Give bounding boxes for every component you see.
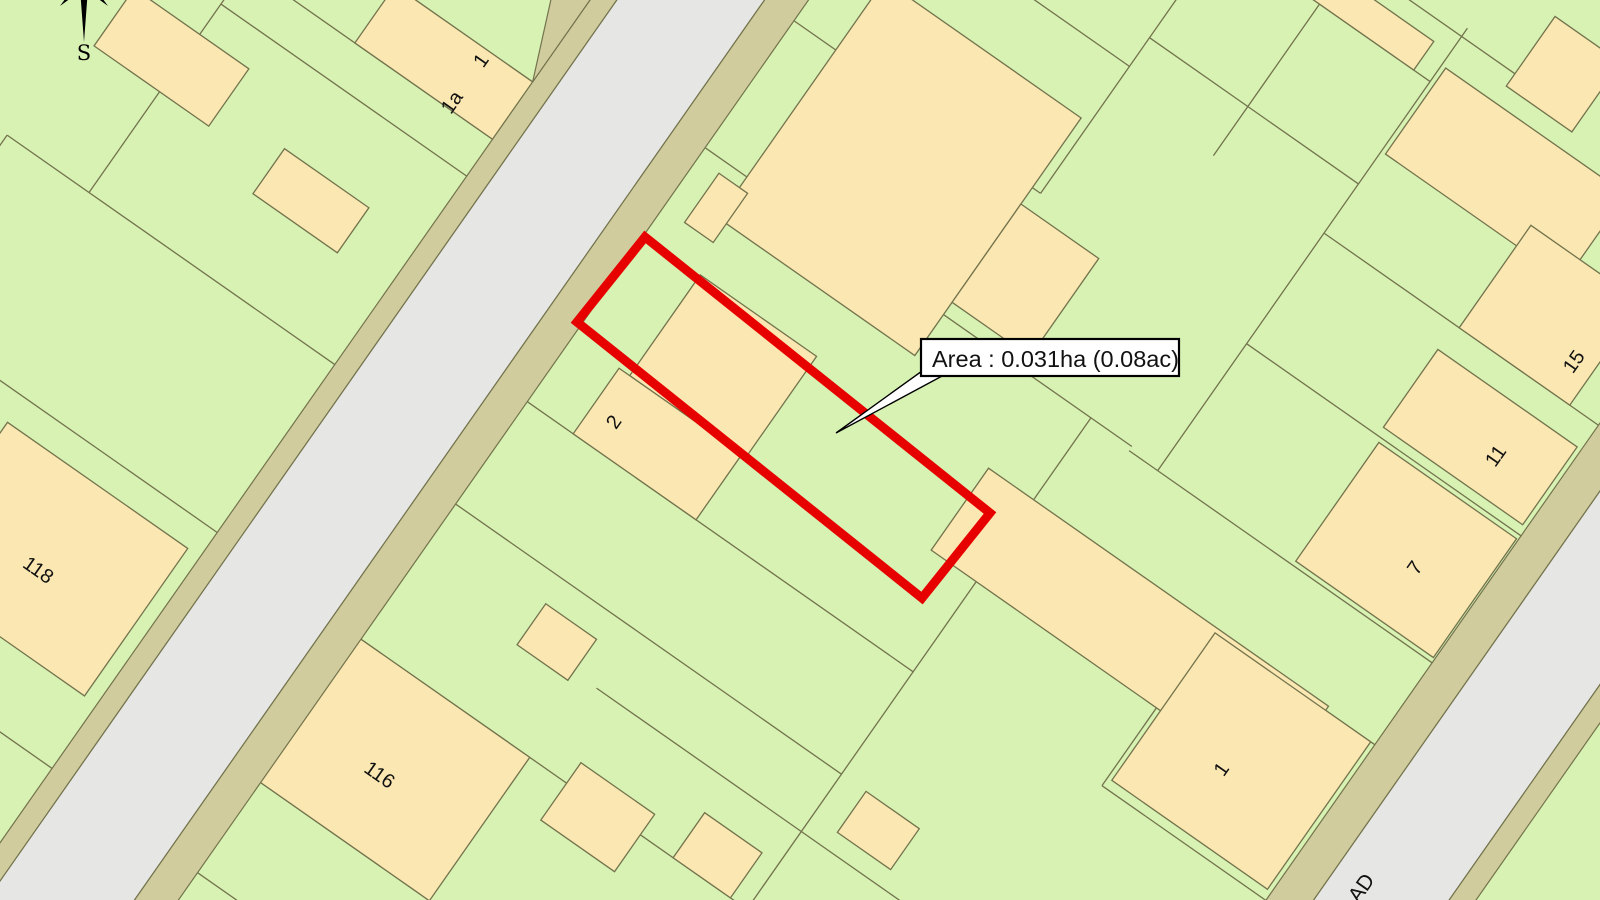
site-plan-viewport: 11a2118116151171AD Area : 0.031ha (0.08a…	[0, 0, 1600, 900]
map-canvas[interactable]: 11a2118116151171AD Area : 0.031ha (0.08a…	[0, 0, 1600, 900]
area-annotation-text: Area : 0.031ha (0.08ac)	[932, 346, 1179, 372]
compass-south-label: S	[77, 41, 91, 65]
